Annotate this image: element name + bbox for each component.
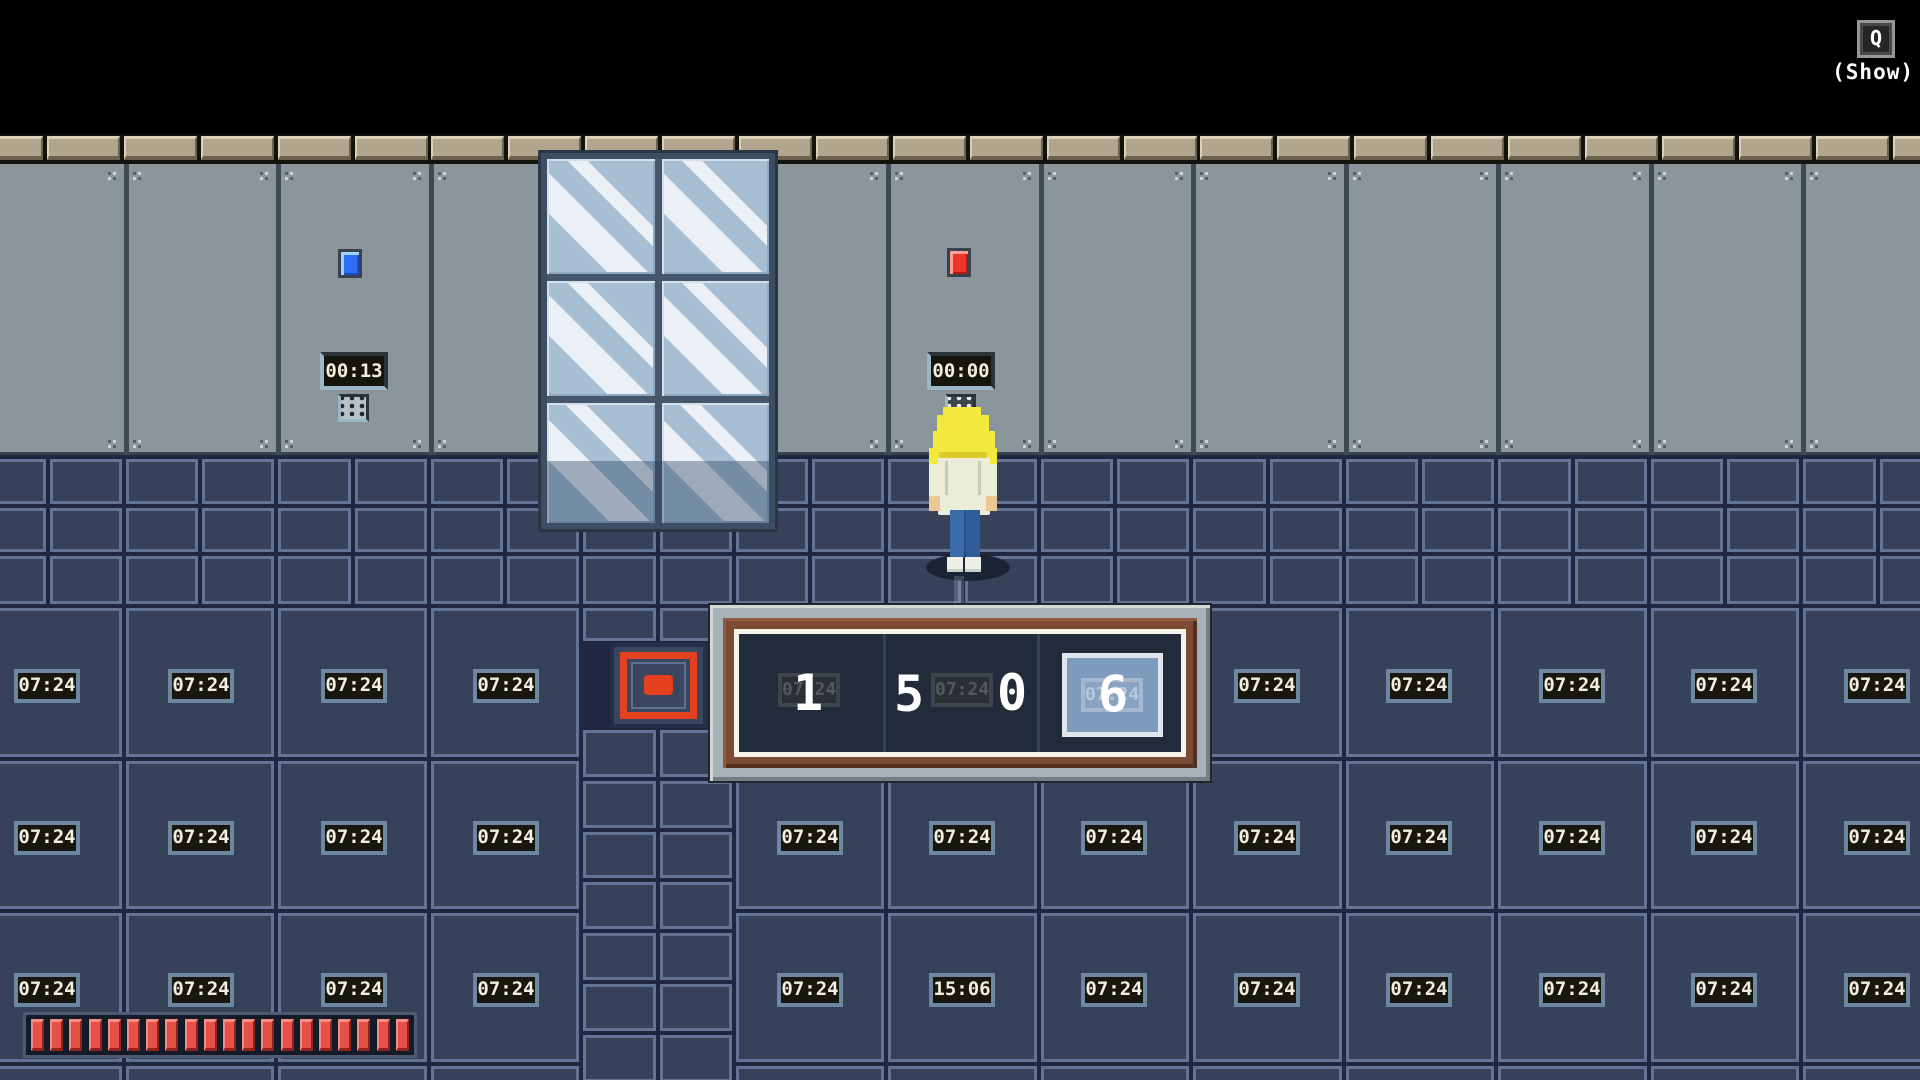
progress-segment [242, 1019, 255, 1051]
floor-clock: 07:24 [1386, 669, 1452, 703]
code-digit-3[interactable]: 0 [982, 664, 1042, 724]
floor-clock: 07:24 [321, 973, 387, 1007]
floor-clock: 07:24 [168, 669, 234, 703]
floor-clock: 07:24 [473, 669, 539, 703]
floor-clock: 07:24 [777, 821, 843, 855]
progress-segment [319, 1019, 332, 1051]
progress-bar [23, 1012, 417, 1058]
window-pane [547, 159, 655, 274]
floor-clock: 07:24 [1081, 973, 1147, 1007]
floor-clock: 07:24 [1691, 973, 1757, 1007]
floor-clock: 07:24 [1539, 669, 1605, 703]
show-label: (Show) [1714, 60, 1914, 84]
progress-segment [223, 1019, 236, 1051]
selected-digit-slot[interactable]: 07:24 6 [1062, 653, 1163, 737]
wall-button-red[interactable] [947, 248, 971, 277]
floor-clock: 07:24 [1539, 973, 1605, 1007]
floor-clock: 07:24 [1234, 821, 1300, 855]
floor-clock: 07:24 [1691, 821, 1757, 855]
floor-clock: 07:24 [14, 973, 80, 1007]
player-character [926, 404, 1004, 576]
floor-clock: 07:24 [473, 821, 539, 855]
floor-clock: 07:24 [168, 821, 234, 855]
progress-segment [50, 1019, 63, 1051]
progress-segment [108, 1019, 121, 1051]
floor-clock: 07:24 [321, 669, 387, 703]
floor-switch-tile [610, 643, 707, 728]
floor-clock: 07:24 [777, 973, 843, 1007]
code-digit-4[interactable]: 6 [1083, 665, 1143, 725]
wall-timer-right: 00:00 [927, 352, 995, 390]
progress-segment [396, 1019, 409, 1051]
progress-segment [146, 1019, 159, 1051]
code-panel: 07:24 07:24 1 5 0 07:24 6 [708, 603, 1212, 783]
wall-button-blue[interactable] [338, 249, 362, 278]
progress-segment [185, 1019, 198, 1051]
floor-clock: 07:24 [168, 973, 234, 1007]
window-pane [662, 281, 770, 396]
floor-clock: 07:24 [1081, 821, 1147, 855]
progress-segment [357, 1019, 370, 1051]
window-lower-shade [547, 461, 769, 523]
floor-clock: 07:24 [1844, 821, 1910, 855]
top-black-bar: Q (Show) [0, 0, 1920, 134]
character-beam [954, 576, 964, 606]
floor-clock: 07:24 [1234, 973, 1300, 1007]
progress-segment [69, 1019, 82, 1051]
floor-clock: 07:24 [1234, 669, 1300, 703]
floor-clock: 07:24 [14, 669, 80, 703]
code-digit-1[interactable]: 1 [778, 664, 838, 724]
progress-segment [204, 1019, 217, 1051]
floor-clock: 07:24 [1539, 821, 1605, 855]
progress-segment [31, 1019, 44, 1051]
floor-switch-button[interactable] [642, 673, 675, 697]
window-pane [547, 281, 655, 396]
window-pane [662, 159, 770, 274]
window [541, 153, 775, 529]
wall-timer-left: 00:13 [320, 352, 388, 390]
progress-segment [300, 1019, 313, 1051]
q-key-icon[interactable]: Q [1857, 20, 1895, 58]
progress-segment [89, 1019, 102, 1051]
floor-clock: 07:24 [1691, 669, 1757, 703]
floor-clock: 07:24 [1844, 669, 1910, 703]
game-screen: 07:2407:2407:2407:2407:2407:2407:2407:24… [0, 0, 1920, 1080]
wall-trim [0, 134, 1920, 164]
floor-clock: 07:24 [14, 821, 80, 855]
floor-clock: 07:24 [1386, 973, 1452, 1007]
floor-clock: 07:24 [929, 821, 995, 855]
floor-clock: 07:24 [1386, 821, 1452, 855]
floor-clock: 15:06 [929, 973, 995, 1007]
floor-clock: 07:24 [473, 973, 539, 1007]
code-digit-2[interactable]: 5 [879, 665, 939, 725]
floor-clock: 07:24 [1844, 973, 1910, 1007]
keypad-left-icon[interactable] [338, 394, 369, 422]
progress-segment [127, 1019, 140, 1051]
progress-segment [165, 1019, 178, 1051]
progress-segment [261, 1019, 274, 1051]
progress-segment [281, 1019, 294, 1051]
floor-clock: 07:24 [321, 821, 387, 855]
progress-segment [338, 1019, 351, 1051]
progress-segment [377, 1019, 390, 1051]
